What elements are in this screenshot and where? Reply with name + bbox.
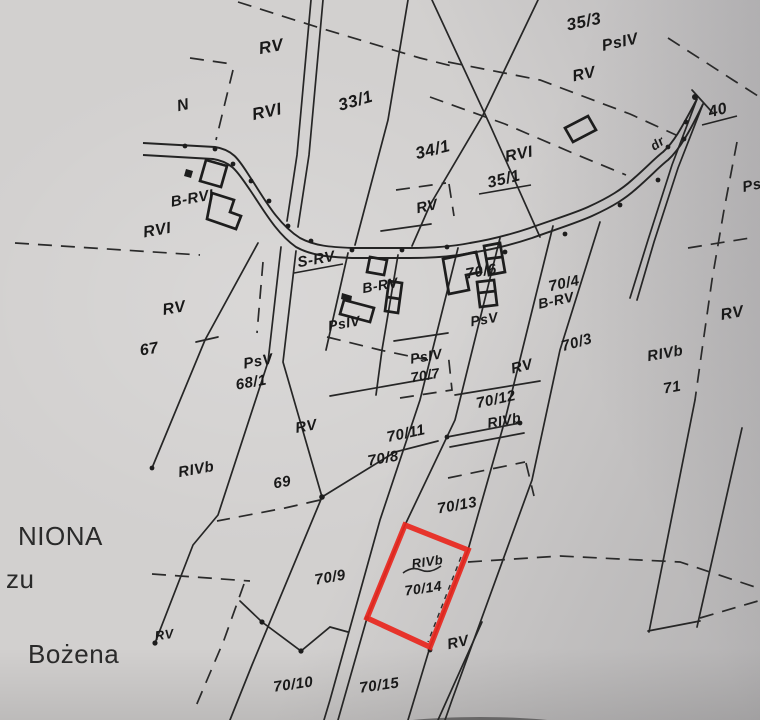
class-label-rivb-71: RIVb: [646, 342, 685, 365]
survey-point: [286, 224, 291, 229]
survey-point: [150, 466, 155, 471]
survey-point: [400, 248, 405, 253]
building-divider: [387, 297, 400, 299]
class-label-rv-70-12: RV: [509, 355, 536, 377]
class-label-rv-box: RV: [415, 196, 441, 217]
dashed-line: [216, 70, 233, 140]
dashed-line: [15, 243, 200, 255]
class-label-n: N: [175, 96, 190, 115]
survey-point: [319, 494, 325, 500]
boundary-line: [322, 441, 438, 497]
survey-point: [213, 147, 218, 152]
parcel-label-33-1: 33/1: [336, 87, 375, 115]
survey-point: [692, 94, 698, 100]
class-label-ps-e: Ps: [741, 175, 760, 196]
class-label-rv-69: RV: [294, 416, 320, 437]
dashed-line: [468, 556, 758, 588]
class-label-rvi-nw: RVI: [250, 99, 284, 124]
building: [200, 160, 227, 187]
class-label-psv-c: PsV: [469, 309, 500, 330]
class-label-psiv-w: PsIV: [327, 312, 363, 334]
parcel-label-70-7: 70/7: [409, 365, 441, 386]
survey-point: [618, 203, 623, 208]
parcel-label-68-1: 68/1: [234, 371, 268, 393]
road: [143, 99, 703, 258]
survey-point: [259, 619, 264, 624]
parcel-label-71: 71: [662, 378, 682, 398]
road-edge-line: [143, 104, 703, 258]
class-label-rv-67: RV: [161, 298, 188, 319]
survey-point: [309, 239, 314, 244]
class-label-rv-sw: RV: [154, 626, 176, 644]
building: [565, 116, 596, 142]
boundary-zigzag: [240, 601, 348, 651]
boundary-line: [394, 333, 448, 341]
parcel-label-70-9: 70/9: [313, 566, 347, 588]
dashed-line: [695, 142, 737, 400]
margin-text-fragment-middle: zu: [6, 564, 34, 594]
building-divider: [486, 257, 502, 259]
margin-text-name-bottom: Bożena: [28, 639, 119, 669]
class-label-rv-s: RV: [446, 632, 472, 653]
parcel-label-70-11: 70/11: [385, 421, 427, 446]
building: [184, 169, 193, 178]
building: [367, 257, 387, 275]
parcel-label-70-8: 70/8: [366, 447, 400, 469]
survey-point: [231, 162, 236, 167]
boundary-line: [649, 400, 695, 632]
survey-point: [183, 144, 188, 149]
boundary-line: [355, 0, 408, 245]
class-label-psv-68: PsV: [242, 350, 276, 372]
parcel-label-35-3: 35/3: [565, 9, 603, 35]
margin-text-fragment-top: NIONA: [18, 521, 103, 551]
dashed-line: [448, 62, 676, 135]
survey-point: [445, 435, 450, 440]
class-label-b-rv-e: B-RV: [537, 288, 577, 311]
boundary-line: [432, 0, 540, 237]
parcel-label-70-15: 70/15: [358, 674, 400, 696]
survey-point: [503, 250, 508, 255]
survey-point: [684, 120, 689, 125]
class-label-psiv-70-7: PsIV: [409, 345, 445, 367]
class-label-rivb-70-14: RIVb: [411, 552, 444, 571]
dashed-line: [668, 38, 758, 96]
building-divider: [478, 291, 496, 293]
class-label-rv-e: RV: [719, 303, 746, 324]
boundary-line: [697, 428, 742, 627]
parcel-label-70-10: 70/10: [272, 673, 314, 695]
survey-point: [249, 179, 254, 184]
survey-point: [298, 648, 303, 653]
boundary-tick: [648, 621, 700, 631]
survey-point: [656, 178, 661, 183]
survey-point: [563, 232, 568, 237]
class-label-s-rv: S-RV: [296, 248, 338, 272]
margin-document-text: NIONA zu Bożena: [6, 521, 119, 669]
dashed-line: [449, 184, 454, 216]
survey-point: [350, 248, 355, 253]
dashed-line: [196, 584, 244, 706]
dashed-line: [700, 601, 758, 618]
parcel-label-70-14: 70/14: [404, 578, 443, 599]
boundary-tick: [381, 224, 431, 231]
class-label-rv-nw: RV: [257, 35, 286, 58]
parcel-label-70-13: 70/13: [436, 494, 479, 518]
class-label-rivb-70-12: RIVb: [486, 409, 522, 431]
dashed-line: [190, 58, 232, 64]
class-label-b-rv-w: B-RV: [361, 274, 401, 296]
road-fork-line: [637, 104, 703, 300]
dashed-line: [217, 500, 320, 521]
dashed-line: [688, 237, 756, 248]
dashed-line: [257, 262, 263, 333]
class-label-rv-ne: RV: [571, 64, 598, 86]
class-label-rvi-c: RVI: [504, 143, 535, 165]
dashed-line: [238, 2, 452, 66]
road-fork-line: [630, 99, 697, 298]
dashed-line: [152, 574, 250, 581]
parcel-label-69: 69: [272, 473, 293, 493]
boundary-line: [338, 238, 500, 720]
boundary-line: [298, 0, 323, 227]
parcel-label-67: 67: [138, 339, 160, 359]
survey-point: [267, 199, 272, 204]
dashed-line: [448, 462, 525, 478]
survey-point: [445, 245, 450, 250]
class-label-psiv-ne: PsIV: [600, 30, 640, 54]
survey-point: [682, 137, 687, 142]
class-label-rivb-w: RIVb: [177, 458, 216, 481]
boundary-line: [287, 0, 311, 221]
dashed-line: [430, 97, 626, 175]
cadastral-map: RV N RVI 33/1 35/3 PsIV RV 40 34/1 RVI 3…: [0, 0, 760, 720]
class-label-rvi-w: RVI: [142, 220, 173, 242]
scanned-map-page: RV N RVI 33/1 35/3 PsIV RV 40 34/1 RVI 3…: [0, 0, 760, 720]
parcel-label-34-1: 34/1: [413, 136, 452, 163]
